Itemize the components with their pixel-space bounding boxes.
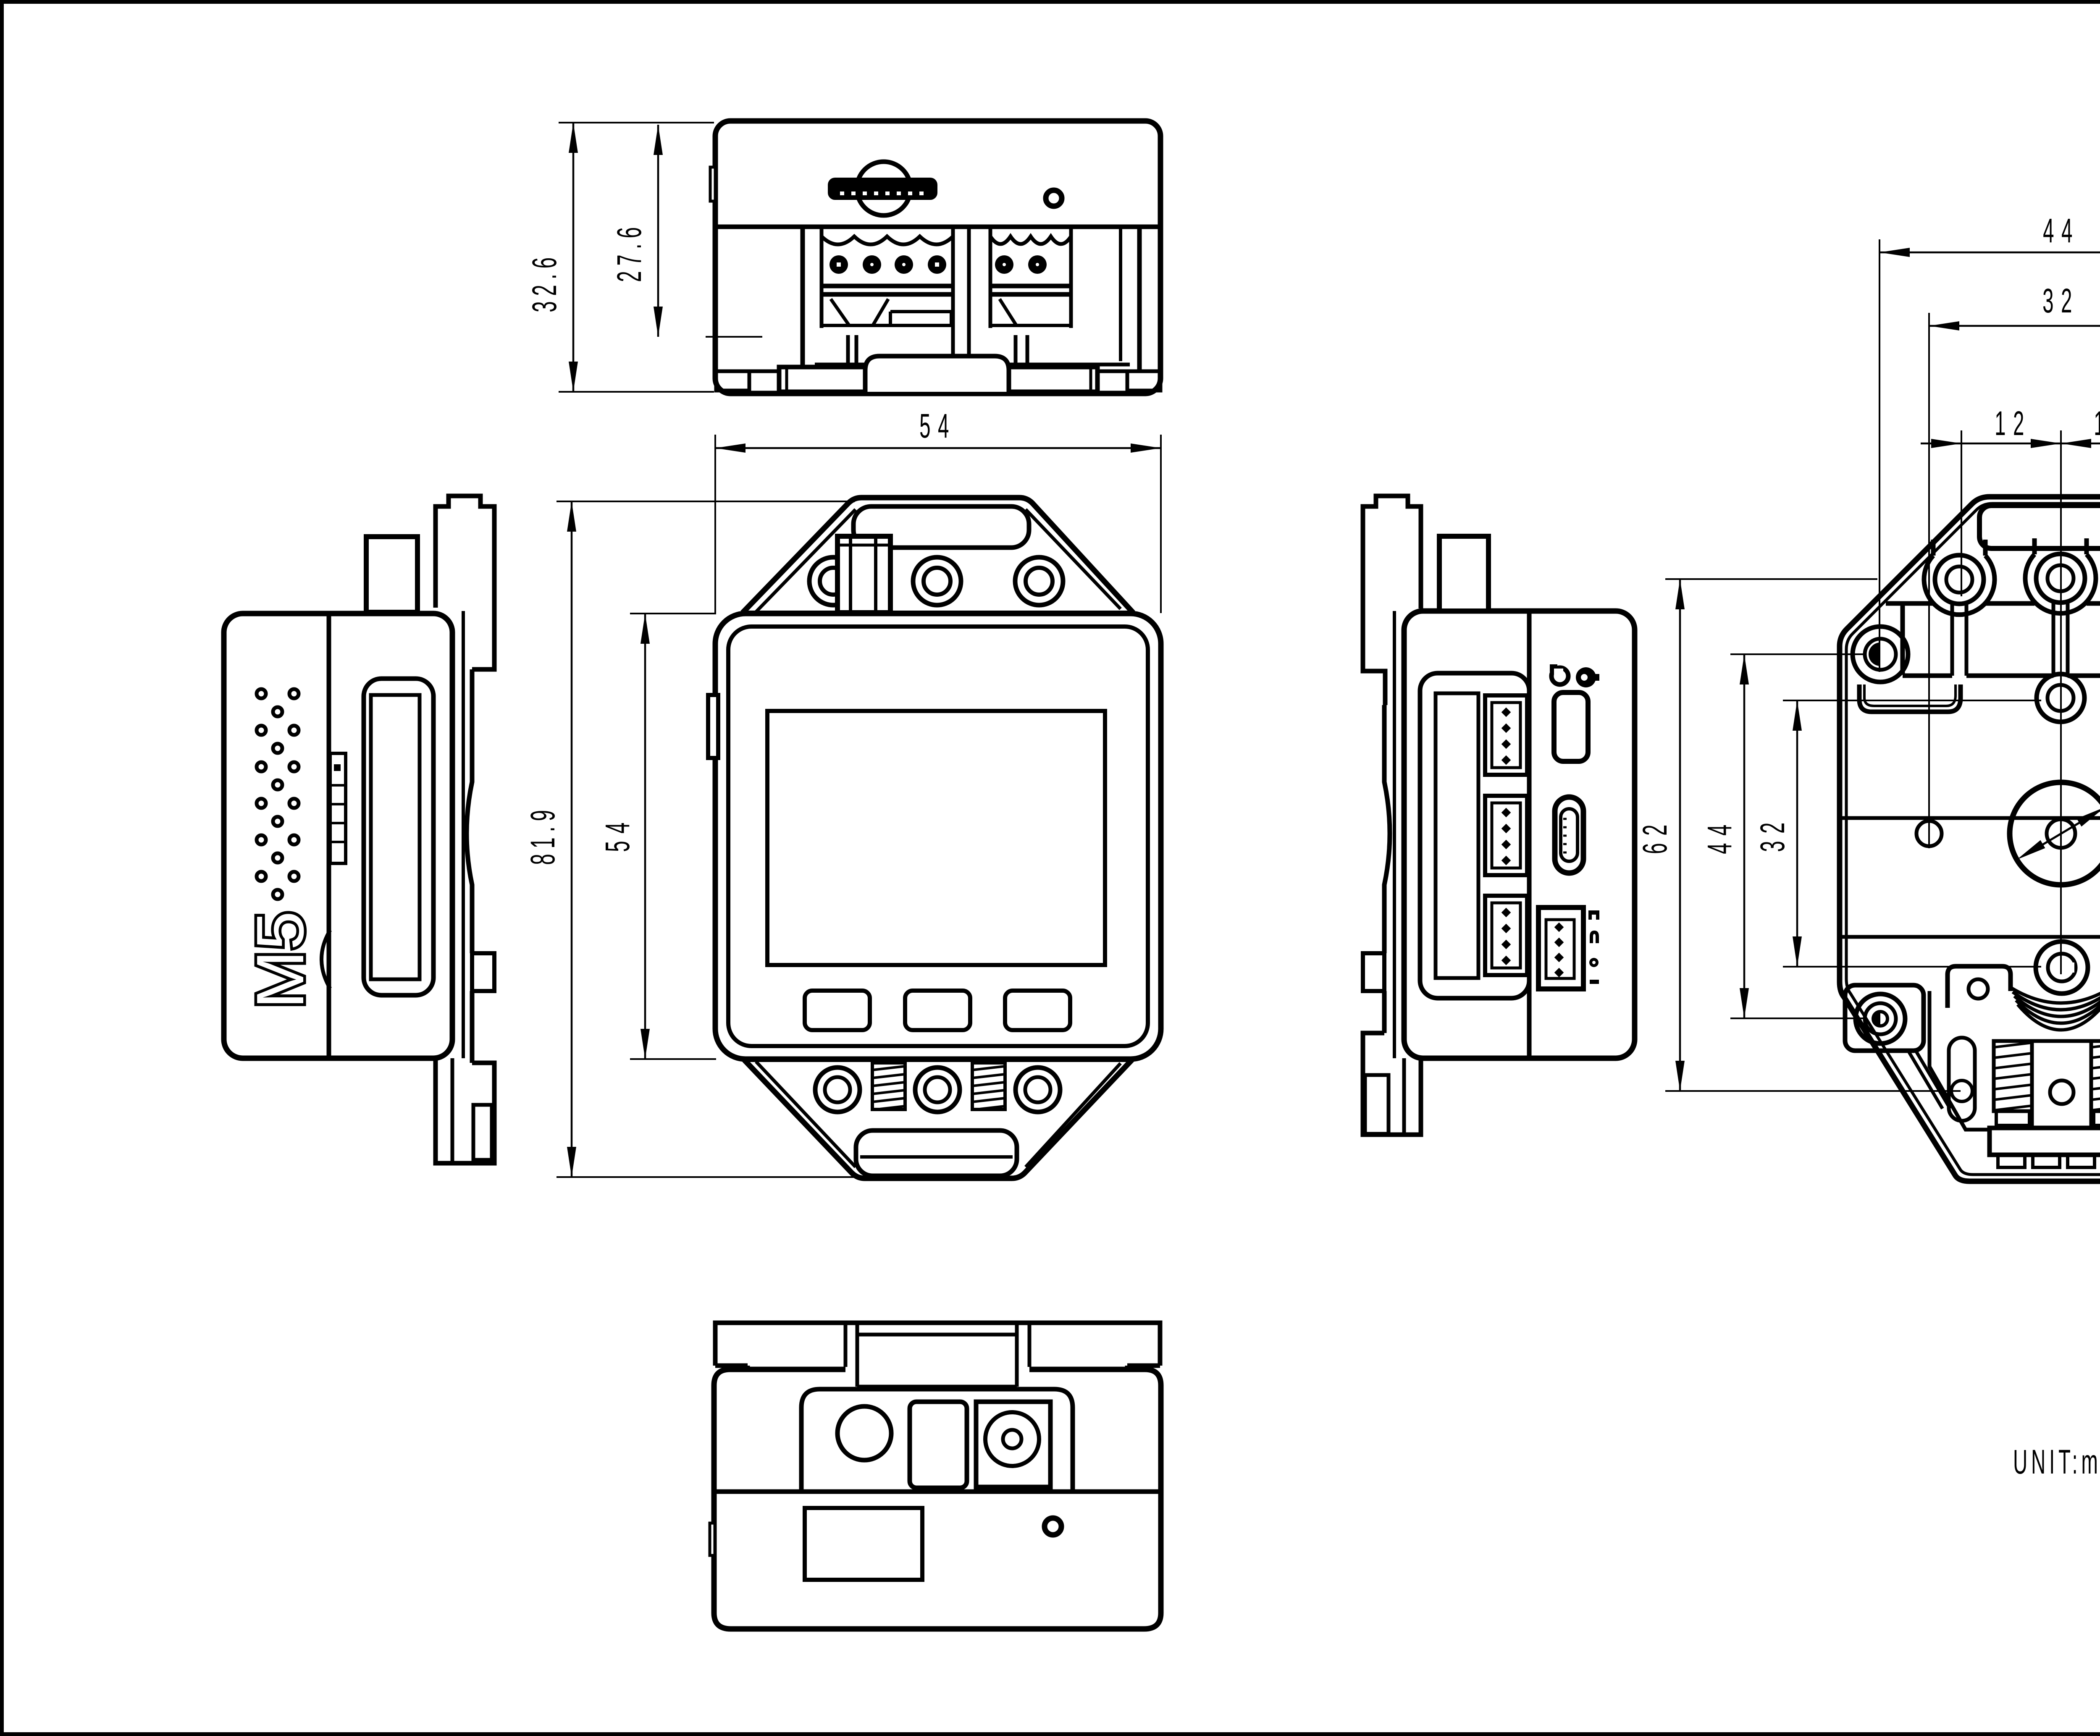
svg-text:54: 54 bbox=[598, 815, 637, 852]
svg-text:12: 12 bbox=[1995, 404, 2032, 443]
svg-text:81.9: 81.9 bbox=[524, 805, 562, 865]
svg-text:12: 12 bbox=[2094, 404, 2100, 443]
svg-text:32: 32 bbox=[1753, 815, 1792, 852]
svg-text:27.6: 27.6 bbox=[610, 222, 649, 282]
svg-text:M5: M5 bbox=[243, 911, 318, 1009]
svg-text:UNIT:mm: UNIT:mm bbox=[2013, 1443, 2100, 1482]
svg-text:54: 54 bbox=[919, 407, 956, 446]
svg-text:62: 62 bbox=[1636, 817, 1675, 854]
svg-text:44: 44 bbox=[2043, 212, 2080, 250]
svg-text:32.6: 32.6 bbox=[525, 252, 564, 312]
svg-text:32: 32 bbox=[2042, 282, 2079, 320]
svg-text:44: 44 bbox=[1701, 817, 1739, 854]
